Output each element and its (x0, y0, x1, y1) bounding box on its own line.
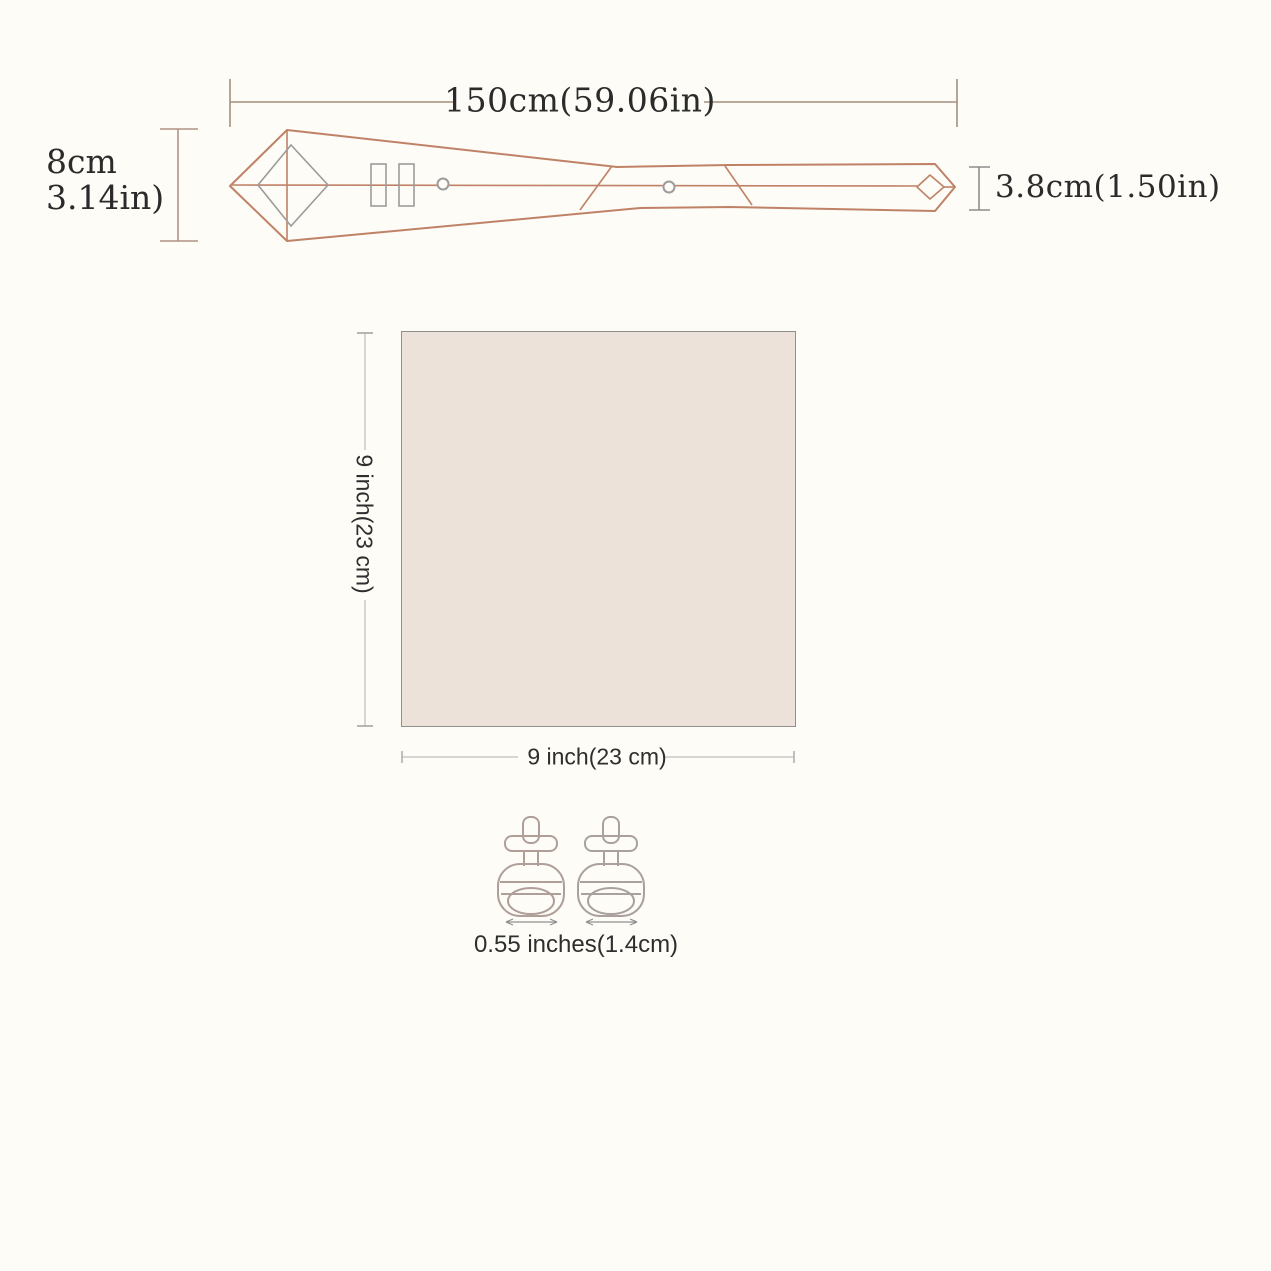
cufflink-post (603, 817, 619, 843)
tie-tail-diamond (917, 175, 944, 199)
tie-width-label-line1: 8cm (46, 144, 164, 180)
cufflink-post (523, 817, 539, 843)
tie-length-label: 150cm(59.06in) (444, 81, 716, 120)
tie-width-label: 8cm 3.14in) (46, 144, 164, 216)
cufflink-size-arrows (506, 919, 637, 925)
tie-tail-dimension (969, 167, 990, 210)
product-dimension-diagram: 150cm(59.06in) 8cm 3.14in) 3.8cm(1.50in)… (0, 0, 1271, 1271)
tie-center-line (232, 185, 918, 186)
cufflink-body (498, 864, 564, 916)
cufflink-face-ellipse (588, 888, 634, 914)
pocket-square-width-label: 9 inch(23 cm) (527, 744, 666, 771)
tie-seam-left (580, 166, 612, 210)
tie-tail-width-label: 3.8cm(1.50in) (995, 169, 1221, 205)
tie-outline (230, 130, 955, 241)
tie-width-label-line2: 3.14in) (46, 180, 164, 216)
cufflink-size-label: 0.55 inches(1.4cm) (474, 931, 678, 959)
cufflink-face-ellipse (508, 888, 554, 914)
cufflink-right-drawing (578, 817, 644, 916)
tie-width-dimension (160, 129, 198, 241)
pocket-square-height-label: 9 inch(23 cm) (351, 454, 378, 593)
tie-stitch-hole-2 (664, 182, 675, 193)
cufflink-body (578, 864, 644, 916)
cufflink-left-drawing (498, 817, 564, 916)
pocket-square-drawing (401, 331, 796, 727)
tie-stitch-hole-1 (438, 179, 449, 190)
